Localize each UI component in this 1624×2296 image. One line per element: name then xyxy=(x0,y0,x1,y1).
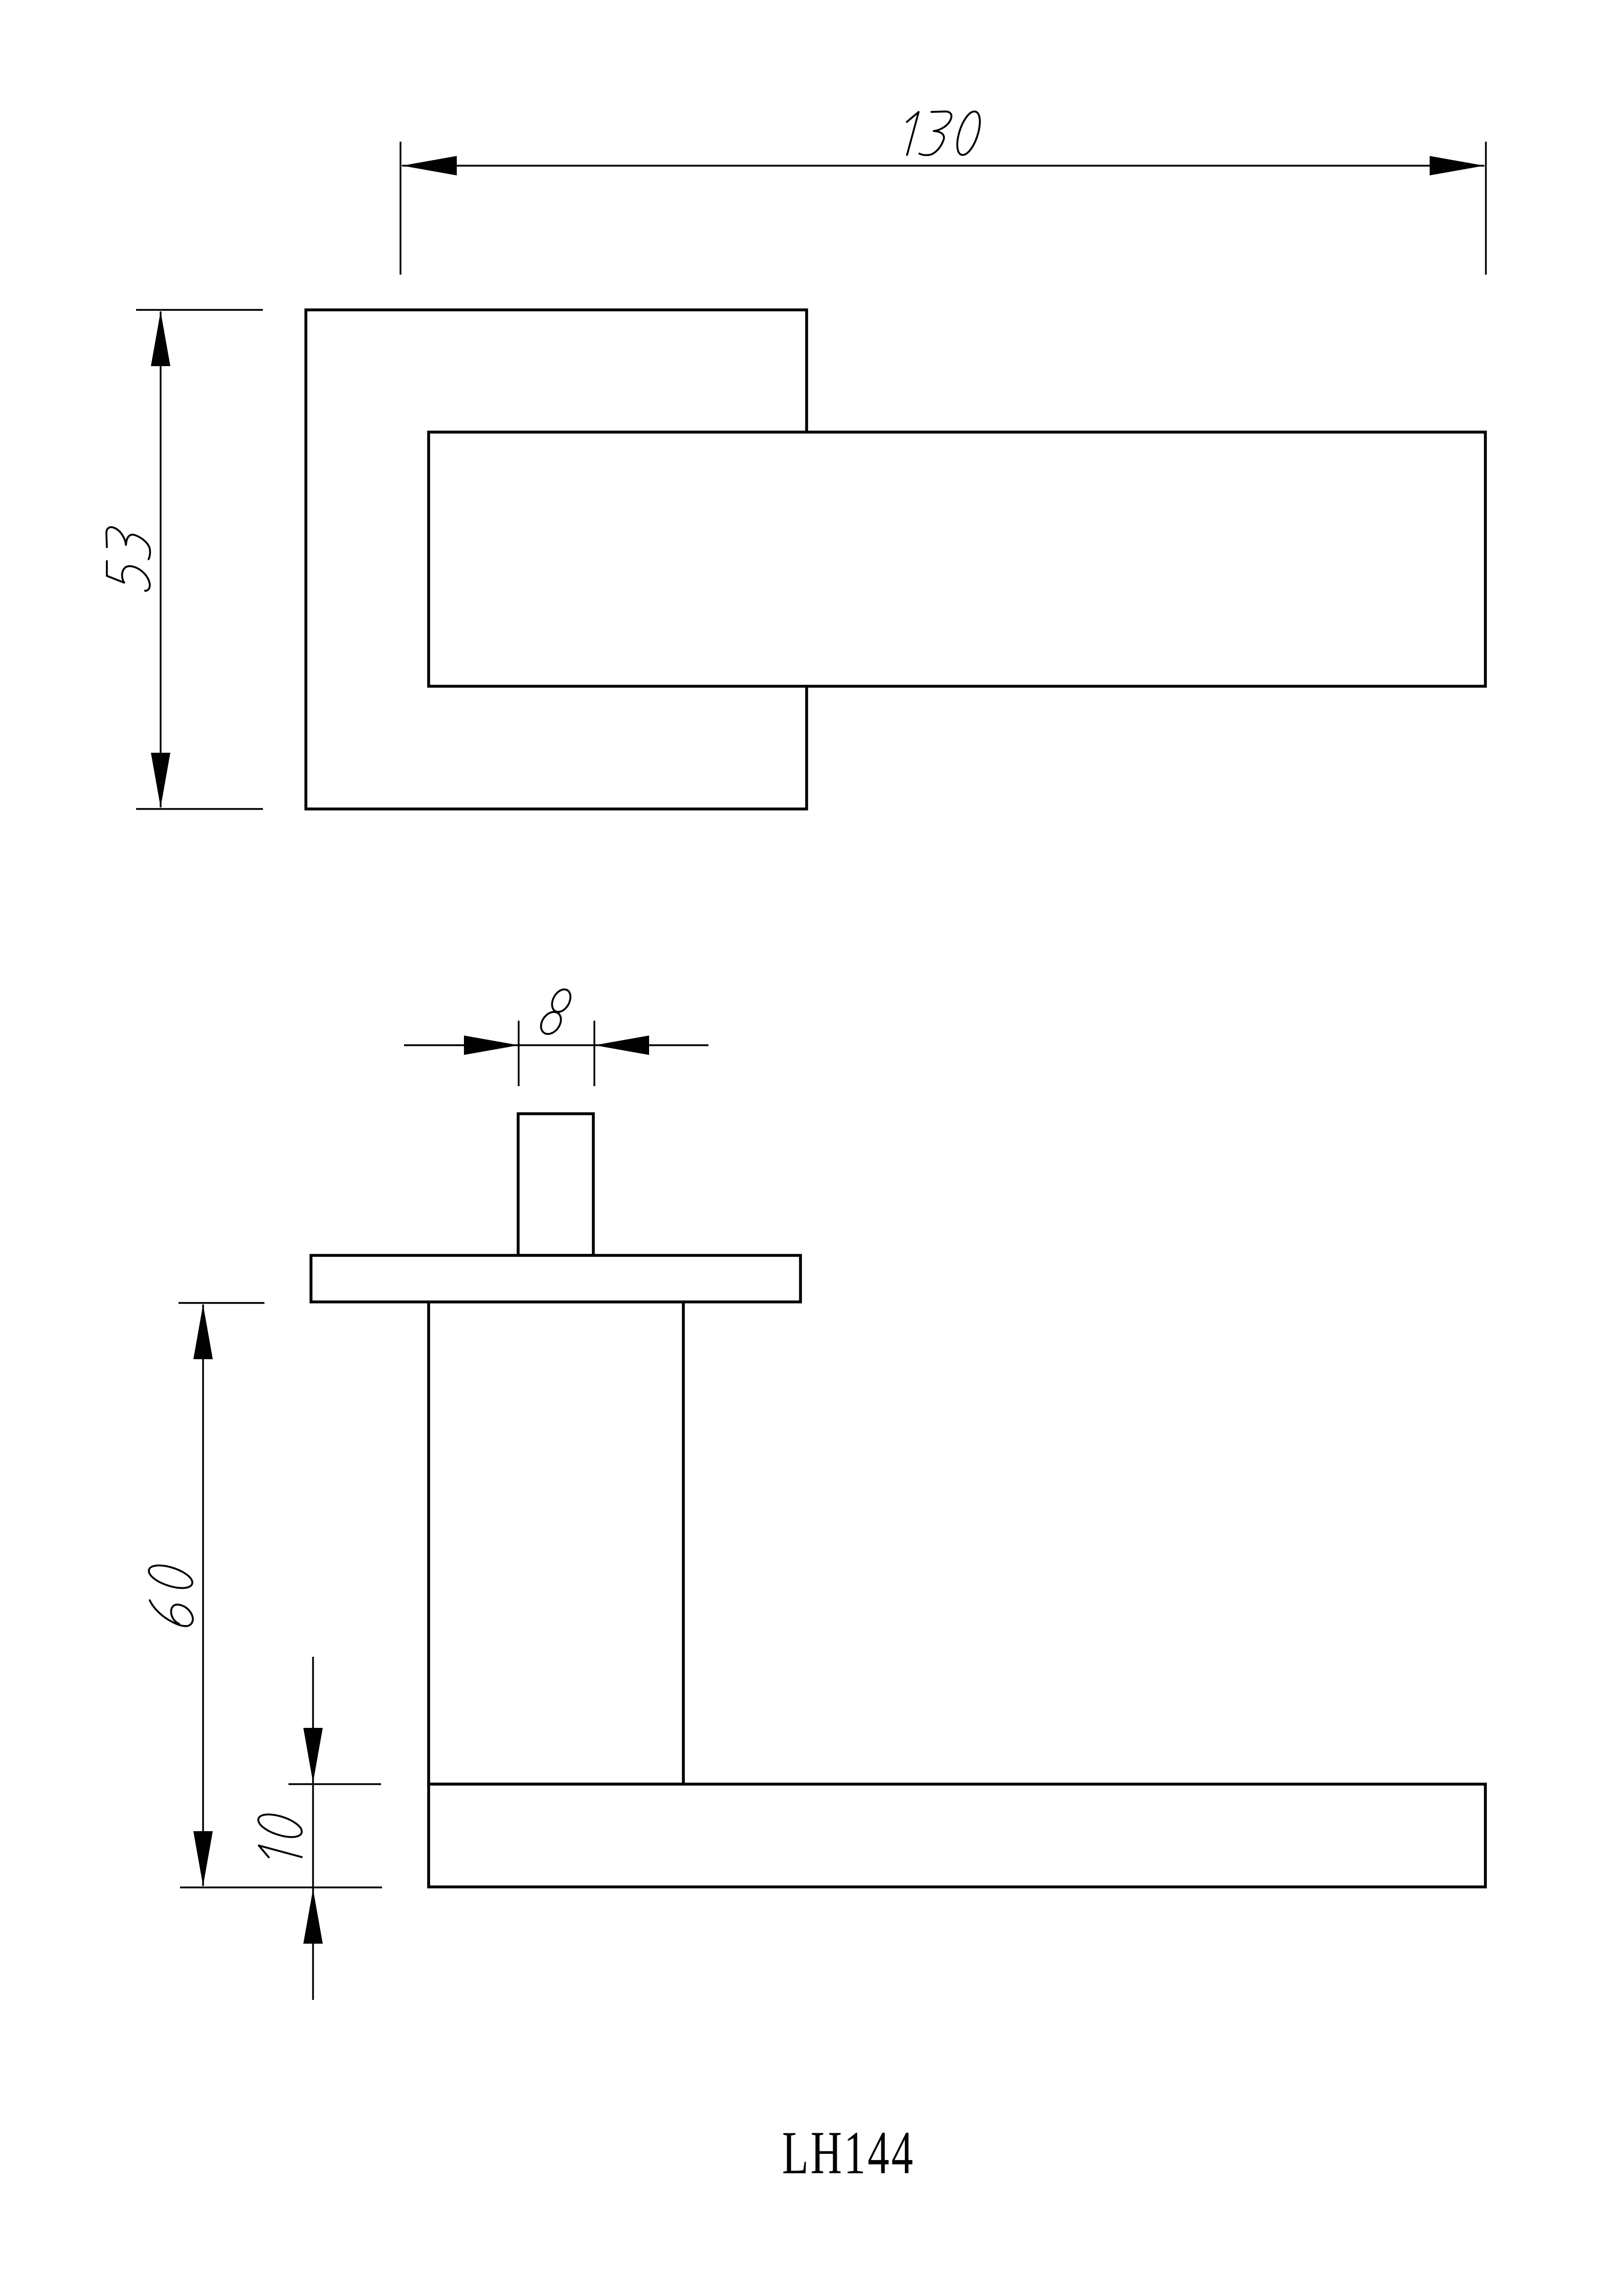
svg-text:LH144: LH144 xyxy=(782,2120,915,2187)
